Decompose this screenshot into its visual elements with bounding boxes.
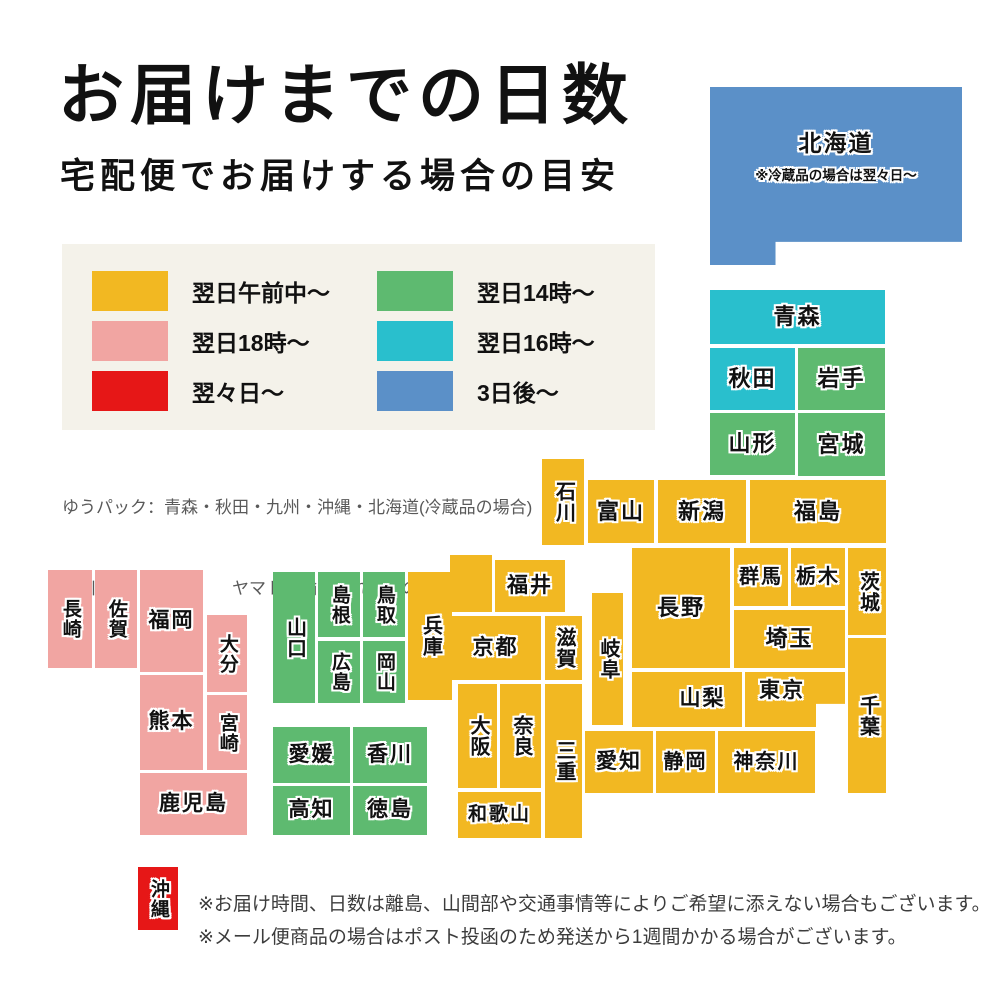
prefecture-label: 佐賀 — [105, 599, 127, 639]
prefecture-yamaguchi: 山口 — [273, 572, 315, 703]
prefecture-label: 山梨 — [680, 687, 726, 711]
prefecture-toyama: 富山 — [588, 480, 654, 543]
prefecture-kagoshima: 鹿児島 — [140, 773, 247, 835]
prefecture-label: 岩手 — [817, 366, 865, 391]
prefecture-label: 山形 — [728, 431, 776, 456]
prefecture-okinawa: 沖縄 — [138, 867, 178, 930]
prefecture-hokkaido: 北海道※冷蔵品の場合は翌々日〜 — [710, 87, 962, 265]
prefecture-label: 神奈川 — [734, 751, 800, 774]
prefecture-label: 東京 — [759, 679, 805, 703]
prefecture-niigata: 新潟 — [658, 480, 746, 543]
prefecture-label: 北海道 — [799, 130, 874, 156]
prefecture-label: 三重 — [552, 740, 575, 782]
prefecture-label: 福岡 — [149, 609, 195, 633]
prefecture-ehime: 愛媛 — [273, 727, 350, 783]
prefecture-kanagawa: 神奈川 — [718, 731, 815, 793]
prefecture-shiga: 滋賀 — [545, 616, 582, 680]
prefecture-gunma: 群馬 — [734, 548, 788, 606]
prefecture-nara: 奈良 — [500, 684, 541, 788]
prefecture-kochi: 高知 — [273, 786, 350, 835]
prefecture-yamanashi: 山梨 — [663, 672, 742, 727]
prefecture-tokushima: 徳島 — [353, 786, 427, 835]
prefecture-label: 鳥取 — [373, 585, 395, 625]
prefecture-label: 和歌山 — [468, 804, 531, 826]
prefecture-fukui: 福井 — [495, 560, 565, 612]
prefecture-kagawa: 香川 — [353, 727, 427, 783]
prefecture-label: 島根 — [328, 585, 350, 625]
prefecture-gifu: 岐阜 — [592, 593, 623, 725]
prefecture-label: 長崎 — [59, 599, 81, 639]
prefecture-label: 岐阜 — [596, 638, 619, 680]
prefecture-yamagata: 山形 — [710, 413, 795, 475]
prefecture-chiba: 千葉 — [848, 638, 886, 793]
prefecture-hiroshima: 広島 — [318, 641, 360, 703]
prefecture-aichi: 愛知 — [585, 731, 653, 793]
prefecture-label: 富山 — [597, 499, 645, 524]
prefecture-okayama: 岡山 — [363, 641, 405, 703]
prefecture-label: 埼玉 — [765, 626, 813, 651]
prefecture-ishikawa: 石川 — [542, 459, 584, 545]
prefecture-saga: 佐賀 — [95, 570, 137, 668]
prefecture-label: 長野 — [657, 595, 705, 620]
japan-delivery-map: 北海道※冷蔵品の場合は翌々日〜青森秋田岩手山形宮城石川富山新潟福島群馬栃木茨城埼… — [0, 0, 1000, 1000]
prefecture-tochigi: 栃木 — [791, 548, 845, 606]
prefecture-miyagi: 宮城 — [798, 413, 885, 476]
prefecture-mie: 三重 — [545, 684, 582, 838]
prefecture-iwate: 岩手 — [798, 348, 885, 410]
prefecture-label: 愛媛 — [289, 743, 335, 767]
prefecture-osaka: 大阪 — [458, 684, 497, 788]
footnote-1: ※お届け時間、日数は離島、山間部や交通事情等によりご希望に添えない場合もございま… — [198, 888, 991, 921]
prefecture-label: 愛知 — [596, 750, 642, 774]
prefecture-label: 香川 — [367, 743, 413, 767]
prefecture-fukuoka: 福岡 — [140, 570, 203, 672]
prefecture-label: 新潟 — [678, 499, 726, 524]
prefecture-wakayama: 和歌山 — [458, 792, 541, 838]
prefecture-miyazaki: 宮崎 — [207, 695, 247, 770]
prefecture-label: 山口 — [283, 617, 306, 659]
prefecture-label: 宮崎 — [216, 713, 238, 753]
prefecture-label: 岡山 — [373, 652, 395, 692]
prefecture-label: 大分 — [216, 634, 238, 674]
prefecture-filler-nagano-south — [632, 672, 672, 727]
prefecture-label: 福島 — [794, 499, 842, 524]
prefecture-tokyo: 東京 — [745, 672, 845, 727]
prefecture-label: 青森 — [773, 304, 821, 329]
prefecture-fukushima: 福島 — [750, 480, 886, 543]
prefecture-ibaraki: 茨城 — [848, 548, 886, 635]
prefecture-label: 鹿児島 — [159, 792, 228, 816]
prefecture-label: 秋田 — [728, 366, 776, 391]
delivery-days-infographic: お届けまでの日数 宅配便でお届けする場合の目安 翌日午前中〜翌日18時〜翌々日〜… — [0, 0, 1000, 1000]
prefecture-label: 沖縄 — [147, 879, 169, 919]
prefecture-label: 奈良 — [509, 715, 532, 757]
prefecture-filler-kyoto-north — [450, 555, 492, 612]
prefecture-label: 兵庫 — [419, 615, 442, 657]
prefecture-label: 石川 — [552, 481, 575, 523]
prefecture-label: 滋賀 — [552, 627, 575, 669]
prefecture-label: 広島 — [328, 652, 350, 692]
prefecture-label: 福井 — [507, 574, 553, 598]
prefecture-label: 静岡 — [664, 751, 708, 774]
footnotes: ※お届け時間、日数は離島、山間部や交通事情等によりご希望に添えない場合もございま… — [198, 888, 991, 954]
prefecture-aomori: 青森 — [710, 290, 885, 344]
prefecture-label: 栃木 — [796, 566, 840, 589]
prefecture-kyoto: 京都 — [450, 616, 541, 680]
prefecture-akita: 秋田 — [710, 348, 795, 410]
prefecture-label: 宮城 — [817, 432, 865, 457]
prefecture-label: 高知 — [289, 798, 335, 822]
prefecture-nagasaki: 長崎 — [48, 570, 92, 668]
prefecture-tottori: 鳥取 — [363, 572, 405, 637]
prefecture-label: 茨城 — [856, 571, 879, 613]
prefecture-shizuoka: 静岡 — [656, 731, 715, 793]
prefecture-label: 徳島 — [367, 798, 413, 822]
prefecture-label: 熊本 — [149, 710, 195, 734]
prefecture-label: 大阪 — [466, 715, 489, 757]
hokkaido-refrigerated-note: ※冷蔵品の場合は翌々日〜 — [755, 164, 917, 184]
footnote-2: ※メール便商品の場合はポスト投函のため発送から1週間かかる場合がございます。 — [198, 921, 991, 954]
prefecture-label: 群馬 — [739, 566, 783, 589]
prefecture-saitama: 埼玉 — [734, 610, 845, 668]
prefecture-label: 京都 — [473, 636, 519, 660]
prefecture-label: 千葉 — [856, 695, 879, 737]
prefecture-hyogo: 兵庫 — [408, 572, 452, 700]
prefecture-nagano: 長野 — [632, 548, 730, 668]
prefecture-oita: 大分 — [207, 615, 247, 692]
prefecture-kumamoto: 熊本 — [140, 675, 203, 770]
prefecture-shimane: 島根 — [318, 572, 360, 637]
